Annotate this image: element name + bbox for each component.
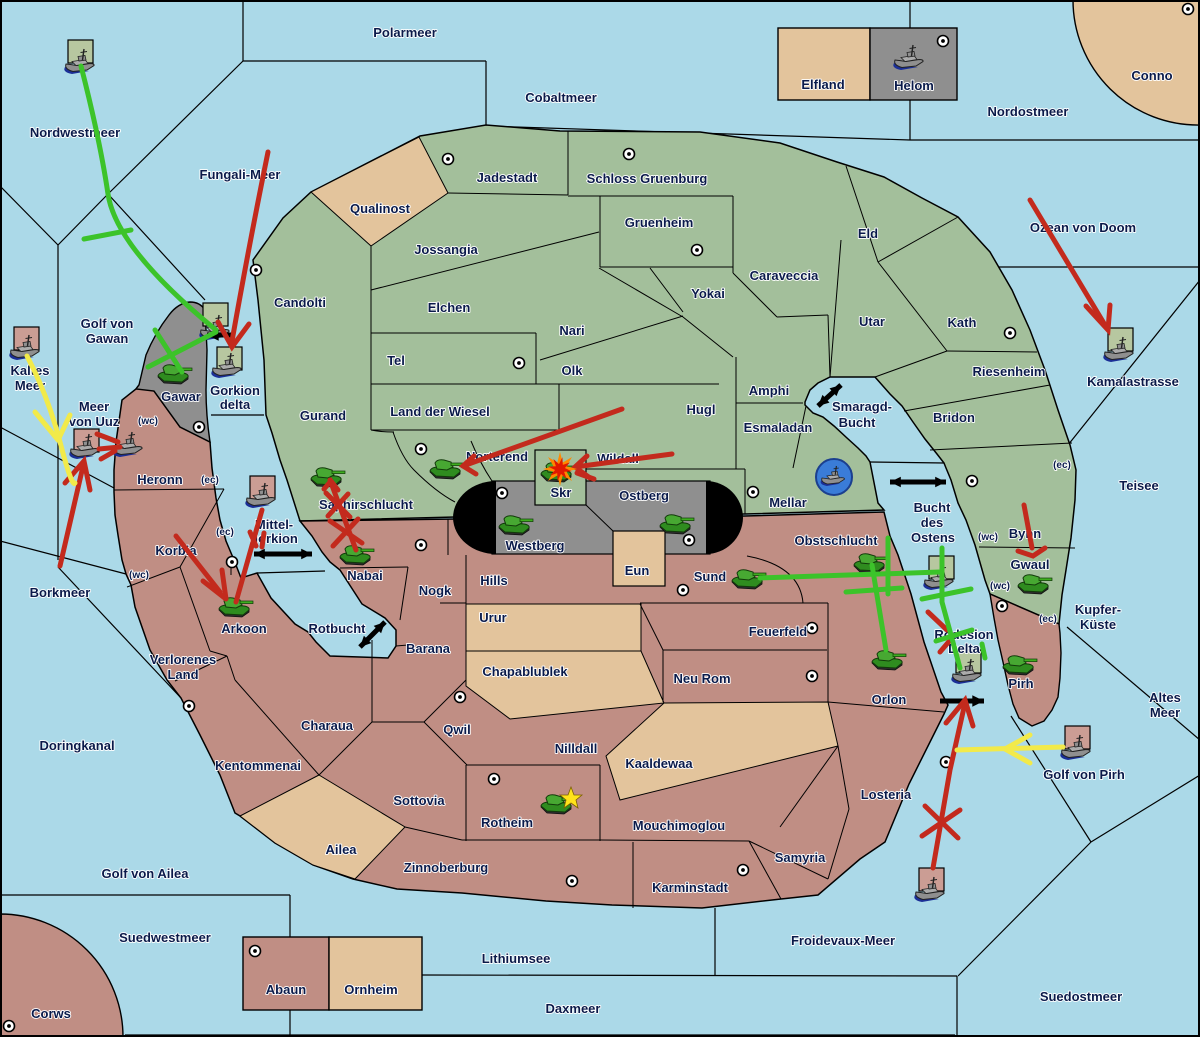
- svg-text:Rotbucht: Rotbucht: [308, 621, 366, 636]
- svg-text:Lithiumsee: Lithiumsee: [482, 951, 551, 966]
- svg-text:Kentommenai: Kentommenai: [215, 758, 301, 773]
- svg-text:Gawan: Gawan: [86, 331, 129, 346]
- svg-text:des: des: [921, 515, 943, 530]
- svg-text:Eld: Eld: [858, 226, 878, 241]
- svg-text:Gruenheim: Gruenheim: [625, 215, 694, 230]
- svg-text:Zinnoberburg: Zinnoberburg: [404, 860, 489, 875]
- svg-text:Mellar: Mellar: [769, 495, 807, 510]
- svg-text:Land der Wiesel: Land der Wiesel: [390, 404, 490, 419]
- svg-text:Ailea: Ailea: [325, 842, 357, 857]
- svg-text:Froidevaux-Meer: Froidevaux-Meer: [791, 933, 895, 948]
- svg-text:Chapablublek: Chapablublek: [482, 664, 568, 679]
- svg-text:Barana: Barana: [406, 641, 451, 656]
- svg-text:Smaragd-: Smaragd-: [832, 399, 892, 414]
- svg-text:Jossangia: Jossangia: [414, 242, 478, 257]
- svg-text:Conno: Conno: [1131, 68, 1172, 83]
- svg-text:(wc): (wc): [990, 581, 1010, 592]
- svg-text:Schloss Gruenburg: Schloss Gruenburg: [587, 171, 708, 186]
- svg-text:Suedostmeer: Suedostmeer: [1040, 989, 1122, 1004]
- svg-text:Mouchimoglou: Mouchimoglou: [633, 818, 725, 833]
- svg-text:(ec): (ec): [1053, 460, 1071, 471]
- svg-text:Ornheim: Ornheim: [344, 982, 397, 997]
- svg-text:Verlorenes: Verlorenes: [150, 652, 217, 667]
- svg-text:Nordwestmeer: Nordwestmeer: [30, 125, 120, 140]
- svg-text:(ec): (ec): [216, 527, 234, 538]
- svg-text:Urur: Urur: [479, 610, 506, 625]
- svg-text:Sottovia: Sottovia: [393, 793, 445, 808]
- svg-text:Teisee: Teisee: [1119, 478, 1159, 493]
- svg-text:Orlon: Orlon: [872, 692, 907, 707]
- svg-text:(wc): (wc): [978, 532, 998, 543]
- svg-text:Karminstadt: Karminstadt: [652, 880, 729, 895]
- svg-text:Westberg: Westberg: [506, 538, 565, 553]
- svg-text:(ec): (ec): [201, 475, 219, 486]
- svg-text:(wc): (wc): [129, 570, 149, 581]
- svg-text:Heronn: Heronn: [137, 472, 183, 487]
- svg-text:Nilldall: Nilldall: [555, 741, 598, 756]
- svg-text:Gorkion: Gorkion: [210, 383, 260, 398]
- svg-text:Feuerfeld: Feuerfeld: [749, 624, 808, 639]
- svg-text:Nari: Nari: [559, 323, 584, 338]
- svg-text:Obstschlucht: Obstschlucht: [794, 533, 878, 548]
- svg-text:Helom: Helom: [894, 78, 934, 93]
- svg-text:Neu Rom: Neu Rom: [673, 671, 730, 686]
- svg-text:Hills: Hills: [480, 573, 507, 588]
- svg-text:Qwil: Qwil: [443, 722, 470, 737]
- svg-text:Riesenheim: Riesenheim: [973, 364, 1046, 379]
- svg-text:von Uuz: von Uuz: [69, 414, 120, 429]
- svg-text:Land: Land: [167, 667, 198, 682]
- svg-text:Tel: Tel: [387, 353, 405, 368]
- svg-text:Pirh: Pirh: [1008, 676, 1033, 691]
- svg-text:Daxmeer: Daxmeer: [546, 1001, 601, 1016]
- svg-text:Kamalastrasse: Kamalastrasse: [1087, 374, 1179, 389]
- svg-text:(wc): (wc): [138, 416, 158, 427]
- svg-text:Hugl: Hugl: [687, 402, 716, 417]
- svg-text:Bynn: Bynn: [1009, 526, 1042, 541]
- svg-text:Arkoon: Arkoon: [221, 621, 267, 636]
- svg-text:Bridon: Bridon: [933, 410, 975, 425]
- svg-text:Amphi: Amphi: [749, 383, 789, 398]
- svg-text:Cobaltmeer: Cobaltmeer: [525, 90, 597, 105]
- svg-text:Caraveccia: Caraveccia: [750, 268, 819, 283]
- svg-text:Kaaldewaa: Kaaldewaa: [625, 756, 693, 771]
- svg-text:Gawar: Gawar: [161, 389, 201, 404]
- svg-text:Gwaul: Gwaul: [1010, 557, 1049, 572]
- svg-text:Olk: Olk: [562, 363, 584, 378]
- svg-text:Küste: Küste: [1080, 617, 1116, 632]
- svg-text:Meer: Meer: [1150, 705, 1180, 720]
- svg-text:Charaua: Charaua: [301, 718, 354, 733]
- svg-text:Qualinost: Qualinost: [350, 201, 411, 216]
- svg-text:Elfland: Elfland: [801, 77, 844, 92]
- svg-text:Yokai: Yokai: [691, 286, 725, 301]
- svg-text:Borkmeer: Borkmeer: [30, 585, 91, 600]
- svg-text:Elchen: Elchen: [428, 300, 471, 315]
- svg-text:delta: delta: [220, 397, 251, 412]
- svg-text:Gurand: Gurand: [300, 408, 346, 423]
- svg-text:Golf von: Golf von: [81, 316, 134, 331]
- svg-text:Eun: Eun: [625, 563, 650, 578]
- svg-text:Corws: Corws: [31, 1006, 71, 1021]
- svg-text:Altes: Altes: [1149, 690, 1181, 705]
- svg-text:Meer: Meer: [79, 399, 109, 414]
- svg-text:Samyria: Samyria: [775, 850, 826, 865]
- svg-text:Losteria: Losteria: [861, 787, 912, 802]
- svg-text:Nogk: Nogk: [419, 583, 452, 598]
- svg-text:Golf von Pirh: Golf von Pirh: [1043, 767, 1125, 782]
- svg-text:Sund: Sund: [694, 569, 727, 584]
- svg-text:Jadestadt: Jadestadt: [477, 170, 538, 185]
- svg-text:Suedwestmeer: Suedwestmeer: [119, 930, 211, 945]
- svg-text:Nabai: Nabai: [347, 568, 382, 583]
- svg-text:Nordostmeer: Nordostmeer: [988, 104, 1069, 119]
- svg-text:Ostberg: Ostberg: [619, 488, 669, 503]
- svg-text:Rotheim: Rotheim: [481, 815, 533, 830]
- svg-text:Candolti: Candolti: [274, 295, 326, 310]
- svg-text:Abaun: Abaun: [266, 982, 307, 997]
- svg-text:Golf von Ailea: Golf von Ailea: [102, 866, 190, 881]
- svg-text:Doringkanal: Doringkanal: [39, 738, 114, 753]
- svg-text:Kupfer-: Kupfer-: [1075, 602, 1121, 617]
- svg-text:Skr: Skr: [551, 485, 572, 500]
- svg-text:Kath: Kath: [948, 315, 977, 330]
- svg-text:(ec): (ec): [1039, 614, 1057, 625]
- svg-text:Bucht: Bucht: [914, 500, 952, 515]
- svg-text:Fungali-Meer: Fungali-Meer: [200, 167, 281, 182]
- svg-text:Bucht: Bucht: [839, 415, 877, 430]
- svg-text:Esmaladan: Esmaladan: [744, 420, 813, 435]
- svg-text:Utar: Utar: [859, 314, 885, 329]
- svg-text:Ostens: Ostens: [911, 530, 955, 545]
- svg-text:Polarmeer: Polarmeer: [373, 25, 437, 40]
